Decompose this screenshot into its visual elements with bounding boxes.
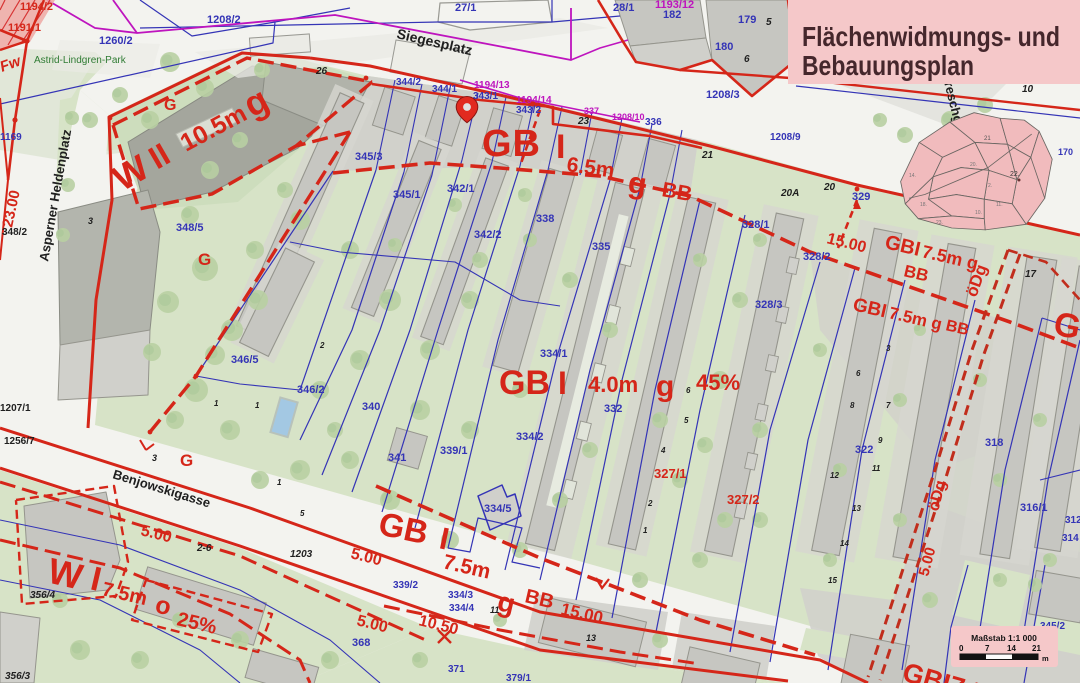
svg-text:329: 329 [852,191,870,203]
svg-text:334/1: 334/1 [540,348,568,360]
svg-text:332: 332 [604,403,622,415]
svg-text:1203: 1203 [290,549,313,560]
svg-text:344/1: 344/1 [432,84,457,95]
svg-text:22.: 22. [1010,171,1020,178]
svg-text:1194/13: 1194/13 [474,80,510,91]
svg-text:339/2: 339/2 [393,580,418,591]
svg-text:G: G [180,451,193,470]
svg-text:356/4: 356/4 [30,590,55,601]
svg-text:368: 368 [352,637,370,649]
svg-text:10: 10 [1022,84,1034,95]
svg-text:14.: 14. [909,173,916,179]
svg-text:379/1: 379/1 [506,673,531,683]
svg-text:356/3: 356/3 [5,671,30,682]
svg-text:1: 1 [277,478,282,487]
svg-text:20A: 20A [780,188,799,199]
svg-text:328/1: 328/1 [742,219,770,231]
svg-text:21: 21 [984,136,991,142]
svg-text:9: 9 [878,436,883,445]
svg-text:345/1: 345/1 [393,189,421,201]
svg-text:26: 26 [315,66,328,77]
svg-text:179: 179 [738,14,756,26]
svg-text:20.: 20. [970,162,977,168]
svg-text:m: m [1042,654,1049,663]
svg-text:338: 338 [536,213,554,225]
svg-text:1169: 1169 [0,132,22,143]
svg-text:14: 14 [1007,644,1016,653]
svg-text:8: 8 [850,401,855,410]
svg-text:180: 180 [715,41,733,53]
svg-text:344/2: 344/2 [396,77,421,88]
svg-text:0: 0 [959,644,964,653]
svg-text:11: 11 [490,605,499,615]
svg-text:337: 337 [584,106,599,116]
svg-text:327/2: 327/2 [727,492,760,507]
svg-text:21: 21 [701,150,714,161]
svg-text:327/1: 327/1 [654,466,687,481]
svg-text:328/2: 328/2 [803,251,831,263]
svg-text:23.: 23. [936,220,943,226]
svg-text:334/5: 334/5 [484,503,512,515]
svg-text:6: 6 [686,386,691,395]
svg-text:3: 3 [152,453,157,463]
svg-text:11.: 11. [996,202,1003,208]
svg-text:21: 21 [1032,644,1041,653]
svg-text:334/2: 334/2 [516,431,544,443]
svg-text:1194/14: 1194/14 [516,95,552,106]
svg-text:17: 17 [1025,269,1037,280]
svg-text:341: 341 [388,452,406,464]
svg-text:342/2: 342/2 [474,229,502,241]
svg-text:10.: 10. [975,210,982,216]
svg-text:13: 13 [586,633,596,643]
svg-text:345/3: 345/3 [355,151,383,163]
svg-text:18.: 18. [920,202,927,208]
svg-text:5: 5 [300,509,305,518]
svg-text:316/1: 316/1 [1020,502,1048,514]
svg-text:343/2: 343/2 [516,105,541,116]
svg-text:1193/12: 1193/12 [655,0,694,11]
svg-text:314: 314 [1062,533,1079,544]
svg-text:5: 5 [684,416,689,425]
svg-text:3: 3 [886,344,891,353]
svg-text:346/2: 346/2 [297,384,325,396]
svg-text:1194/2: 1194/2 [20,1,53,13]
svg-text:6: 6 [856,369,861,378]
svg-text:6: 6 [744,54,750,65]
svg-text:7: 7 [985,644,990,653]
svg-text:27/1: 27/1 [455,2,476,14]
svg-text:312: 312 [1065,515,1080,526]
svg-text:1191/1: 1191/1 [8,22,41,34]
svg-text:343/1: 343/1 [473,91,498,102]
svg-text:28/1: 28/1 [613,2,634,14]
svg-text:1256/7: 1256/7 [4,436,35,447]
svg-text:342/1: 342/1 [447,183,475,195]
svg-text:335: 335 [592,241,610,253]
svg-text:2-6: 2-6 [196,543,212,554]
svg-text:318: 318 [985,437,1003,449]
svg-text:11: 11 [872,464,881,473]
svg-text:4.0m: 4.0m [588,372,638,397]
svg-text:I: I [558,365,567,401]
svg-text:GB: GB [499,364,550,402]
svg-text:7: 7 [886,401,891,410]
svg-text:4: 4 [660,446,666,455]
svg-text:g: g [656,370,674,403]
svg-text:1208/10: 1208/10 [612,112,645,122]
svg-text:45%: 45% [696,370,740,395]
svg-text:1: 1 [643,526,648,535]
svg-text:5: 5 [766,17,772,28]
svg-text:G: G [164,97,176,114]
svg-text:340: 340 [362,401,380,413]
svg-text:1208/9: 1208/9 [770,132,801,143]
svg-text:12: 12 [830,471,839,480]
svg-text:G: G [198,250,211,269]
svg-text:1208/2: 1208/2 [207,14,241,26]
svg-text:2.: 2. [988,183,992,189]
svg-text:2: 2 [319,341,325,350]
svg-text:334/4: 334/4 [449,603,474,614]
svg-text:Maßstab 1:1 000: Maßstab 1:1 000 [971,633,1037,643]
svg-text:14: 14 [840,539,849,548]
svg-text:13: 13 [852,504,861,513]
svg-text:1208/3: 1208/3 [706,89,740,101]
svg-text:Astrid-Lindgren-Park: Astrid-Lindgren-Park [34,55,127,66]
svg-text:23: 23 [577,116,590,127]
svg-text:328/3: 328/3 [755,299,783,311]
svg-text:I: I [556,128,565,166]
svg-text:346/5: 346/5 [231,354,259,366]
svg-text:Bebauungsplan: Bebauungsplan [802,50,974,81]
svg-text:20: 20 [823,182,836,193]
svg-text:1207/1: 1207/1 [0,403,31,414]
svg-text:1: 1 [214,399,219,408]
svg-text:1260/2: 1260/2 [99,35,133,47]
svg-text:371: 371 [448,664,465,675]
svg-text:1: 1 [255,401,260,410]
svg-text:170: 170 [1058,147,1073,157]
svg-text:348/5: 348/5 [176,222,204,234]
svg-text:15: 15 [828,576,837,585]
svg-text:Flächenwidmungs- und: Flächenwidmungs- und [802,21,1060,52]
svg-text:348/2: 348/2 [2,227,27,238]
svg-text:3: 3 [88,216,93,226]
svg-text:339/1: 339/1 [440,445,468,457]
svg-text:GB: GB [482,123,541,165]
svg-text:2: 2 [647,499,653,508]
svg-text:322: 322 [855,444,873,456]
svg-text:336: 336 [645,117,662,128]
svg-text:334/3: 334/3 [448,590,473,601]
